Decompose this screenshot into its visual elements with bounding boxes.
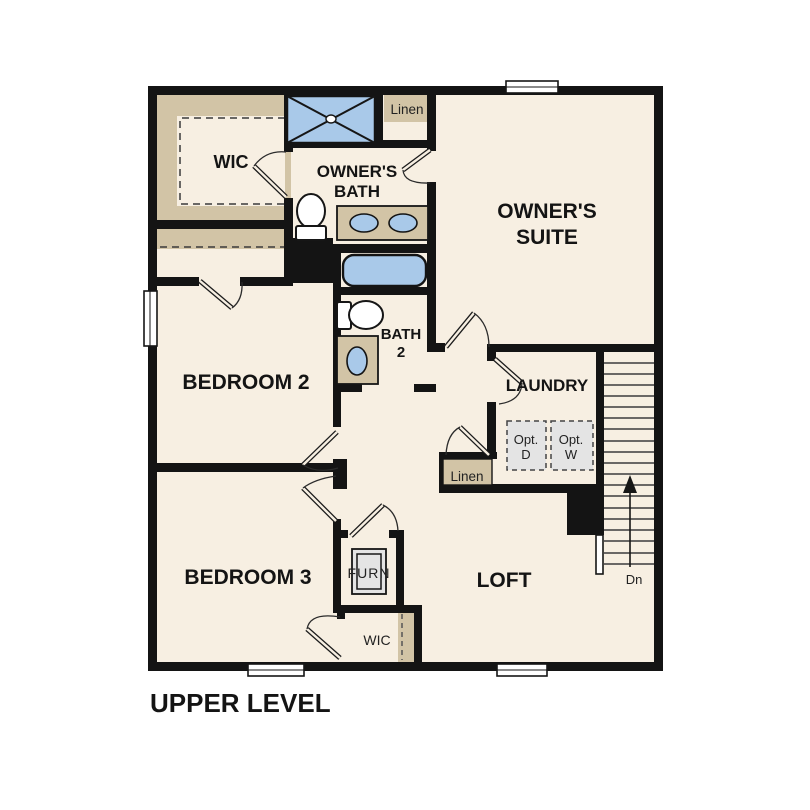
- stairs-wall-mass: [567, 488, 604, 535]
- furn-left-wall: [333, 532, 341, 613]
- laundry-left-wall-lower: [487, 402, 496, 459]
- tub-room-bottom-wall: [333, 287, 436, 295]
- furnace-label: FURN: [348, 565, 391, 581]
- stairs-left-wall: [596, 352, 604, 488]
- tub-room-top-wall: [333, 244, 436, 253]
- owners-bath-vanity: [337, 206, 428, 240]
- owners-bath-toilet: [296, 194, 326, 240]
- owners-bath-label-line1: OWNER'S: [317, 162, 398, 181]
- loft-label: LOFT: [477, 569, 532, 592]
- furn-top-wall-left: [333, 530, 348, 538]
- bedroom-door-nub: [333, 459, 347, 489]
- wic-lower-label: WIC: [363, 632, 390, 648]
- bath-hall-wall-mass: [284, 238, 333, 283]
- exterior-wall-right: [654, 86, 663, 671]
- shower-drain: [326, 115, 336, 123]
- suite-door-nub: [427, 343, 445, 352]
- owners-bath-label-line2: BATH: [334, 182, 380, 201]
- opt-dryer-label-line2: D: [521, 447, 530, 462]
- sink-right: [389, 214, 417, 232]
- furn-right-wall: [396, 530, 404, 613]
- bedroom2-closet-shelf: [157, 229, 291, 249]
- bedroom2-label: BEDROOM 2: [182, 371, 309, 394]
- bath2-vanity: [337, 336, 378, 384]
- wic-upper-label: WIC: [214, 152, 249, 172]
- bedroom3-label: BEDROOM 3: [184, 566, 311, 589]
- laundry-label: LAUNDRY: [506, 376, 589, 395]
- bedroom2-top-wall-right: [240, 277, 293, 286]
- wic-upper-bottom-wall: [157, 220, 291, 229]
- toilet-tank: [296, 226, 326, 240]
- opt-dryer-label-line1: Opt.: [514, 432, 539, 447]
- bath2-bottom-wall-right: [414, 384, 436, 392]
- wic-upper-right-wall-bottom: [284, 198, 293, 229]
- floor-plan-page: WIC OWNER'S BATH OWNER'S SUITE BEDROOM 2…: [0, 0, 810, 810]
- bath2-label-line2: 2: [397, 344, 405, 361]
- stairs-down-label: Dn: [626, 572, 643, 587]
- toilet-bowl: [349, 301, 383, 329]
- opt-washer-label-line2: W: [565, 447, 578, 462]
- bathtub: [343, 255, 426, 286]
- bath2-label-line1: BATH: [381, 326, 422, 343]
- owners-suite-label-line2: SUITE: [516, 226, 578, 249]
- level-title: UPPER LEVEL: [150, 688, 331, 718]
- bath2-toilet: [337, 301, 383, 329]
- linen-upper-label: Linen: [390, 102, 423, 117]
- suite-wall-top: [427, 94, 436, 151]
- bedroom2-top-wall-left: [157, 277, 199, 286]
- floor-plan-drawing: WIC OWNER'S BATH OWNER'S SUITE BEDROOM 2…: [0, 0, 810, 810]
- opt-washer-label-line1: Opt.: [559, 432, 584, 447]
- stair-handrail: [596, 535, 603, 574]
- linen-lower-label: Linen: [450, 469, 483, 484]
- wic-lower-shelf: [398, 612, 415, 662]
- wic-lower-right-wall: [414, 613, 422, 662]
- sink-left: [350, 214, 378, 232]
- shower: [287, 96, 375, 143]
- exterior-wall-left: [148, 86, 157, 671]
- toilet-bowl: [297, 194, 325, 228]
- owners-suite-label-line1: OWNER'S: [497, 200, 597, 223]
- furn-bottom-wall: [333, 605, 422, 613]
- laundry-top-wall: [487, 344, 654, 352]
- sink: [347, 347, 367, 375]
- exterior-wall-top: [148, 86, 663, 95]
- exterior-wall-bottom: [148, 662, 663, 671]
- wic-lower-left-stub: [337, 613, 345, 619]
